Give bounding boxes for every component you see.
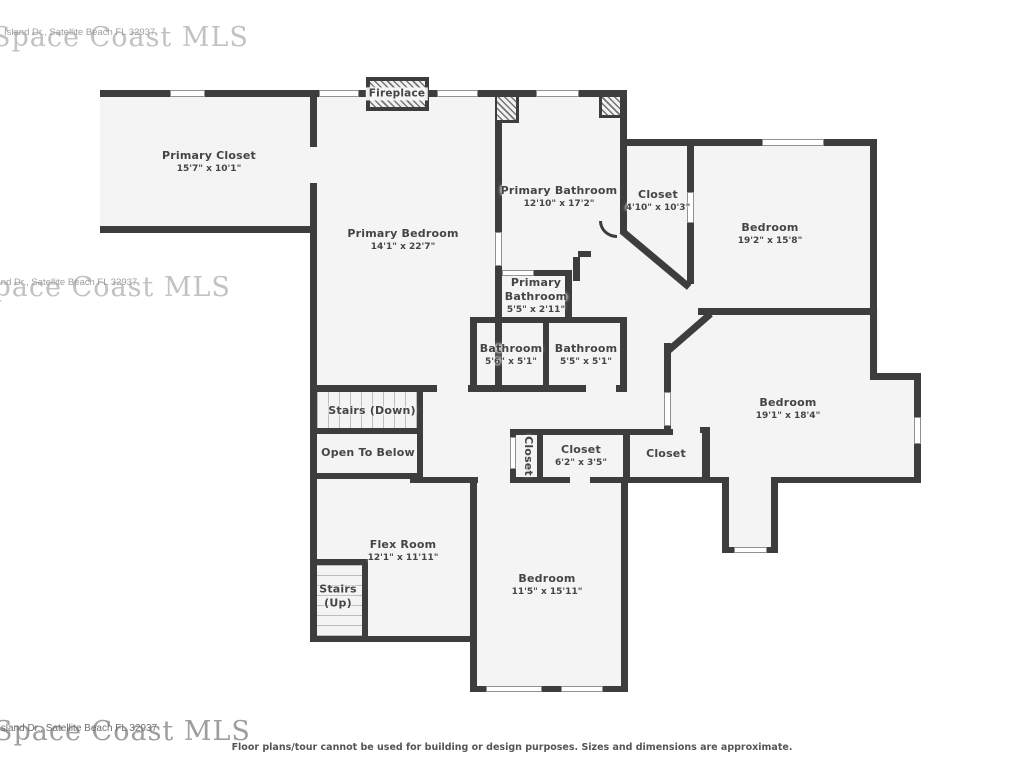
room-name: Closet — [646, 447, 686, 461]
room-name: Primary Bathroom — [501, 184, 618, 198]
room-dimensions: 12'10" x 17'2" — [501, 199, 618, 210]
wall — [510, 468, 516, 483]
wall — [702, 427, 710, 483]
watermark-address: Island Dr., Satellite Beach FL 32937 — [4, 27, 155, 38]
wall — [310, 90, 317, 147]
wall — [620, 139, 877, 146]
room-name: Closet — [521, 436, 535, 476]
wall — [722, 477, 729, 553]
room-name: Bedroom — [756, 396, 821, 410]
room-name: Closet — [626, 188, 691, 202]
wall — [470, 477, 477, 692]
wall — [778, 477, 921, 483]
room-name: Bedroom — [512, 572, 583, 586]
wall — [687, 222, 694, 284]
wall — [543, 323, 549, 385]
wall — [100, 226, 317, 233]
watermark-top-left: Space Coast MLS Island Dr., Satellite Be… — [0, 22, 249, 53]
wall — [362, 559, 368, 642]
room-label-stairs-down: Stairs (Down) — [328, 404, 416, 418]
wall — [914, 380, 921, 418]
room-dimensions: 12'1" x 11'11" — [368, 553, 439, 564]
room-label-primary-bathroom-small: Primary Bathroom5'5" x 2'11" — [503, 276, 569, 316]
room-label-open-to-below: Open To Below — [321, 446, 415, 460]
room-dimensions: 4'10" x 10'3" — [626, 203, 691, 214]
room-name: Primary Bathroom — [503, 276, 569, 304]
room-dimensions: 6'2" x 3'5" — [555, 458, 607, 469]
wall — [914, 443, 921, 483]
room-dimensions: 5'5" x 5'1" — [555, 357, 618, 368]
room-label-primary-bedroom: Primary Bedroom14'1" x 22'7" — [347, 227, 458, 253]
room-label-stairs-up: Stairs (Up) — [315, 582, 361, 610]
wall — [313, 636, 470, 642]
window — [170, 90, 205, 97]
room-label-primary-bathroom: Primary Bathroom12'10" x 17'2" — [501, 184, 618, 210]
window — [664, 392, 671, 426]
window — [914, 417, 921, 444]
wall — [623, 429, 630, 483]
room-name: Stairs (Down) — [328, 404, 416, 418]
room-label-bedroom-bottom: Bedroom11'5" x 15'11" — [512, 572, 583, 598]
room-dimensions: 5'5" x 2'11" — [503, 305, 569, 316]
room-dimensions: 19'2" x 15'8" — [738, 236, 803, 247]
room-dimensions: 11'5" x 15'11" — [512, 587, 583, 598]
room-label-primary-closet: Primary Closet15'7" x 10'1" — [162, 149, 256, 175]
window — [734, 547, 767, 553]
room-name: Primary Bedroom — [347, 227, 458, 241]
wall — [468, 385, 586, 392]
room-label-bedroom-top-right: Bedroom19'2" x 15'8" — [738, 221, 803, 247]
wall — [687, 146, 694, 193]
window — [502, 270, 534, 276]
room-name: Stairs (Up) — [315, 582, 361, 610]
room-dimensions: 5'6" x 5'1" — [480, 357, 543, 368]
room-label-closet-62: Closet6'2" x 3'5" — [555, 443, 607, 469]
window — [510, 437, 516, 469]
wall — [771, 477, 778, 553]
wall — [870, 312, 877, 380]
window — [486, 686, 542, 692]
room-name: Closet — [555, 443, 607, 457]
watermark-address: Island Dr., Satellite Beach FL 32937 — [0, 277, 137, 288]
wall — [510, 429, 673, 435]
hatch-box-left — [497, 97, 519, 123]
wall — [620, 317, 627, 392]
room-label-fireplace: Fireplace — [366, 87, 428, 100]
room-name: Bathroom — [480, 342, 543, 356]
wall — [495, 265, 502, 392]
room-name: Bedroom — [738, 221, 803, 235]
room-name: Flex Room — [368, 538, 439, 552]
wall — [698, 308, 877, 315]
window — [536, 90, 579, 97]
room-dimensions: 14'1" x 22'7" — [347, 242, 458, 253]
room-label-closet-right: Closet — [646, 447, 686, 461]
watermark-mid-left: Space Coast MLS Island Dr., Satellite Be… — [0, 272, 231, 303]
watermark-bottom-left: Space Coast MLS Island Dr., Satellite Be… — [0, 716, 251, 747]
room-label-closet-narrow: Closet — [521, 436, 535, 476]
wall — [310, 385, 437, 392]
wall — [313, 473, 423, 479]
wall — [621, 477, 628, 692]
window — [319, 90, 359, 97]
wall — [590, 477, 710, 483]
wall — [417, 392, 423, 479]
room-dimensions: 15'7" x 10'1" — [162, 164, 256, 175]
wall — [870, 139, 877, 315]
room-name: Fireplace — [366, 87, 428, 100]
room-name: Open To Below — [321, 446, 415, 460]
room-label-flex-room: Flex Room12'1" x 11'11" — [368, 538, 439, 564]
room-label-closet-top: Closet4'10" x 10'3" — [626, 188, 691, 214]
floor-area — [722, 483, 778, 553]
room-label-bathroom-right: Bathroom5'5" x 5'1" — [555, 342, 618, 368]
wall — [870, 373, 921, 380]
room-label-bathroom-left: Bathroom5'6" x 5'1" — [480, 342, 543, 368]
room-label-bedroom-middle: Bedroom19'1" x 18'4" — [756, 396, 821, 422]
wall — [313, 559, 368, 565]
watermark-address: Island Dr., Satellite Beach FL 32937 — [0, 723, 157, 734]
wall — [537, 435, 543, 483]
window — [495, 232, 502, 266]
wall — [313, 428, 423, 434]
floorplan: Primary Closet15'7" x 10'1"Primary Bedro… — [0, 0, 1024, 768]
floorplan-canvas: Primary Closet15'7" x 10'1"Primary Bedro… — [0, 0, 1024, 768]
window — [561, 686, 603, 692]
wall — [310, 183, 317, 642]
wall — [470, 317, 477, 392]
window — [437, 90, 478, 97]
wall — [573, 257, 580, 281]
wall — [664, 425, 671, 433]
room-name: Primary Closet — [162, 149, 256, 163]
room-dimensions: 19'1" x 18'4" — [756, 411, 821, 422]
room-name: Bathroom — [555, 342, 618, 356]
window — [762, 139, 824, 146]
hatch-box-right — [599, 97, 620, 118]
